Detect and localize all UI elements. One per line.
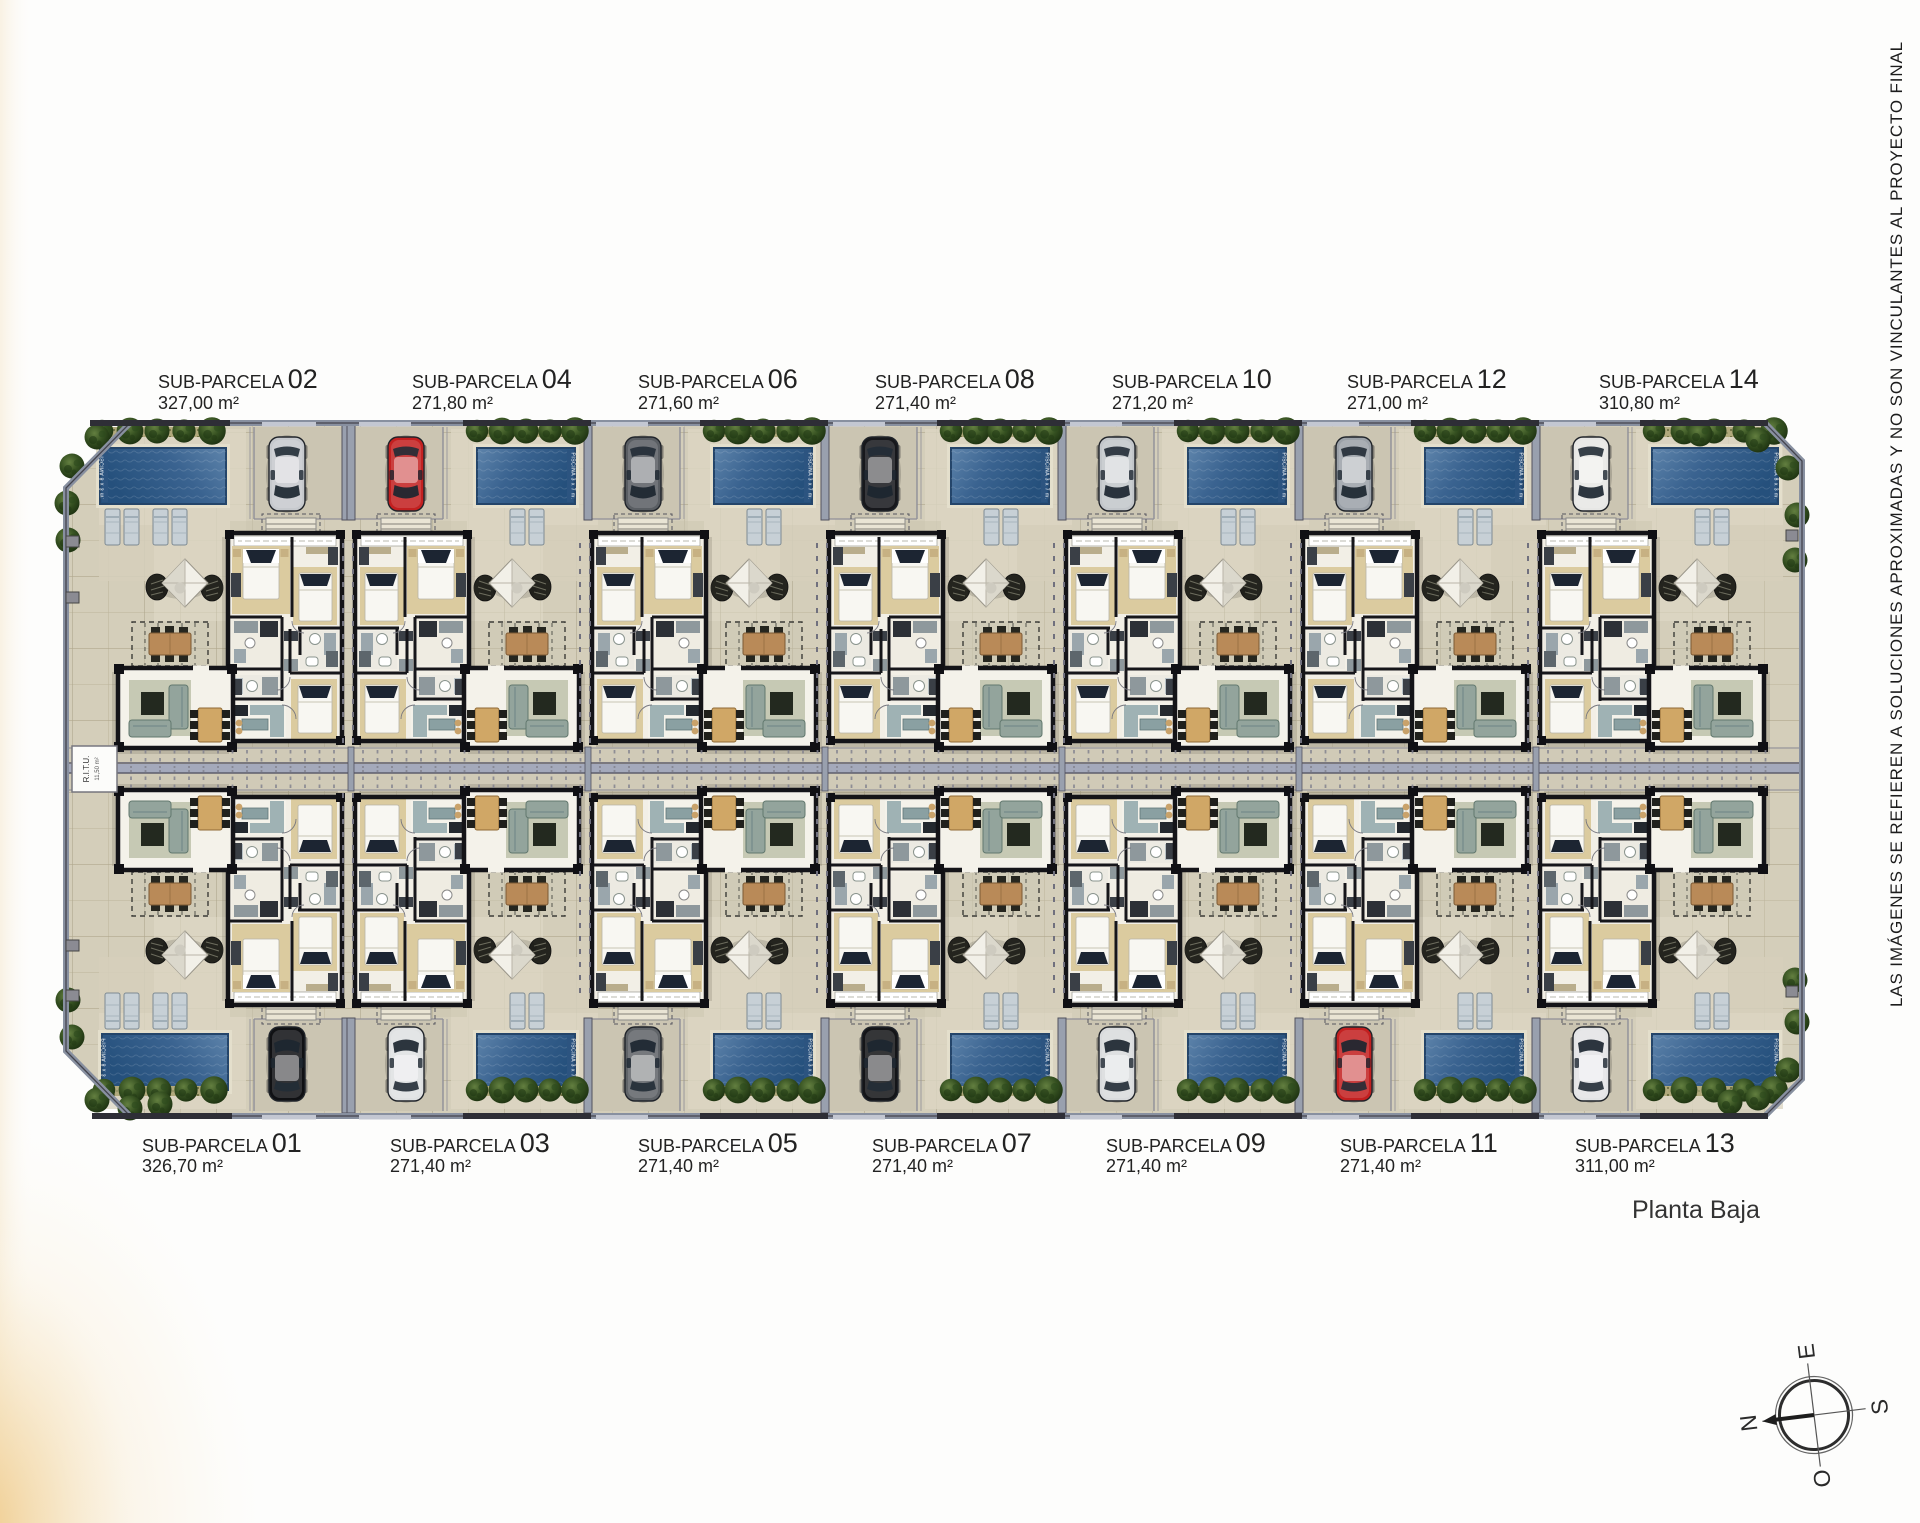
svg-text:271,40 m²: 271,40 m² bbox=[1106, 1156, 1187, 1176]
svg-text:LAS IMÁGENES SE REFIEREN A SOL: LAS IMÁGENES SE REFIEREN A SOLUCIONES AP… bbox=[1887, 41, 1906, 1007]
svg-text:E: E bbox=[1792, 1342, 1820, 1360]
svg-text:271,20 m²: 271,20 m² bbox=[1112, 393, 1193, 413]
svg-text:271,40 m²: 271,40 m² bbox=[390, 1156, 471, 1176]
svg-text:271,40 m²: 271,40 m² bbox=[638, 1156, 719, 1176]
svg-text:11,50 m²: 11,50 m² bbox=[95, 757, 101, 780]
svg-text:271,60 m²: 271,60 m² bbox=[638, 393, 719, 413]
svg-text:271,80 m²: 271,80 m² bbox=[412, 393, 493, 413]
svg-text:R.I.T.U.: R.I.T.U. bbox=[82, 756, 91, 783]
svg-text:S: S bbox=[1866, 1398, 1894, 1416]
svg-text:271,40 m²: 271,40 m² bbox=[872, 1156, 953, 1176]
svg-text:271,40 m²: 271,40 m² bbox=[875, 393, 956, 413]
svg-text:N: N bbox=[1735, 1413, 1763, 1433]
svg-text:271,00 m²: 271,00 m² bbox=[1347, 393, 1428, 413]
svg-text:327,00 m²: 327,00 m² bbox=[158, 393, 239, 413]
svg-text:Planta Baja: Planta Baja bbox=[1632, 1196, 1760, 1224]
svg-text:311,00 m²: 311,00 m² bbox=[1575, 1156, 1655, 1176]
svg-text:271,40 m²: 271,40 m² bbox=[1340, 1156, 1421, 1176]
svg-text:326,70 m²: 326,70 m² bbox=[142, 1156, 223, 1176]
svg-text:O: O bbox=[1808, 1468, 1836, 1489]
svg-text:310,80 m²: 310,80 m² bbox=[1599, 393, 1680, 413]
